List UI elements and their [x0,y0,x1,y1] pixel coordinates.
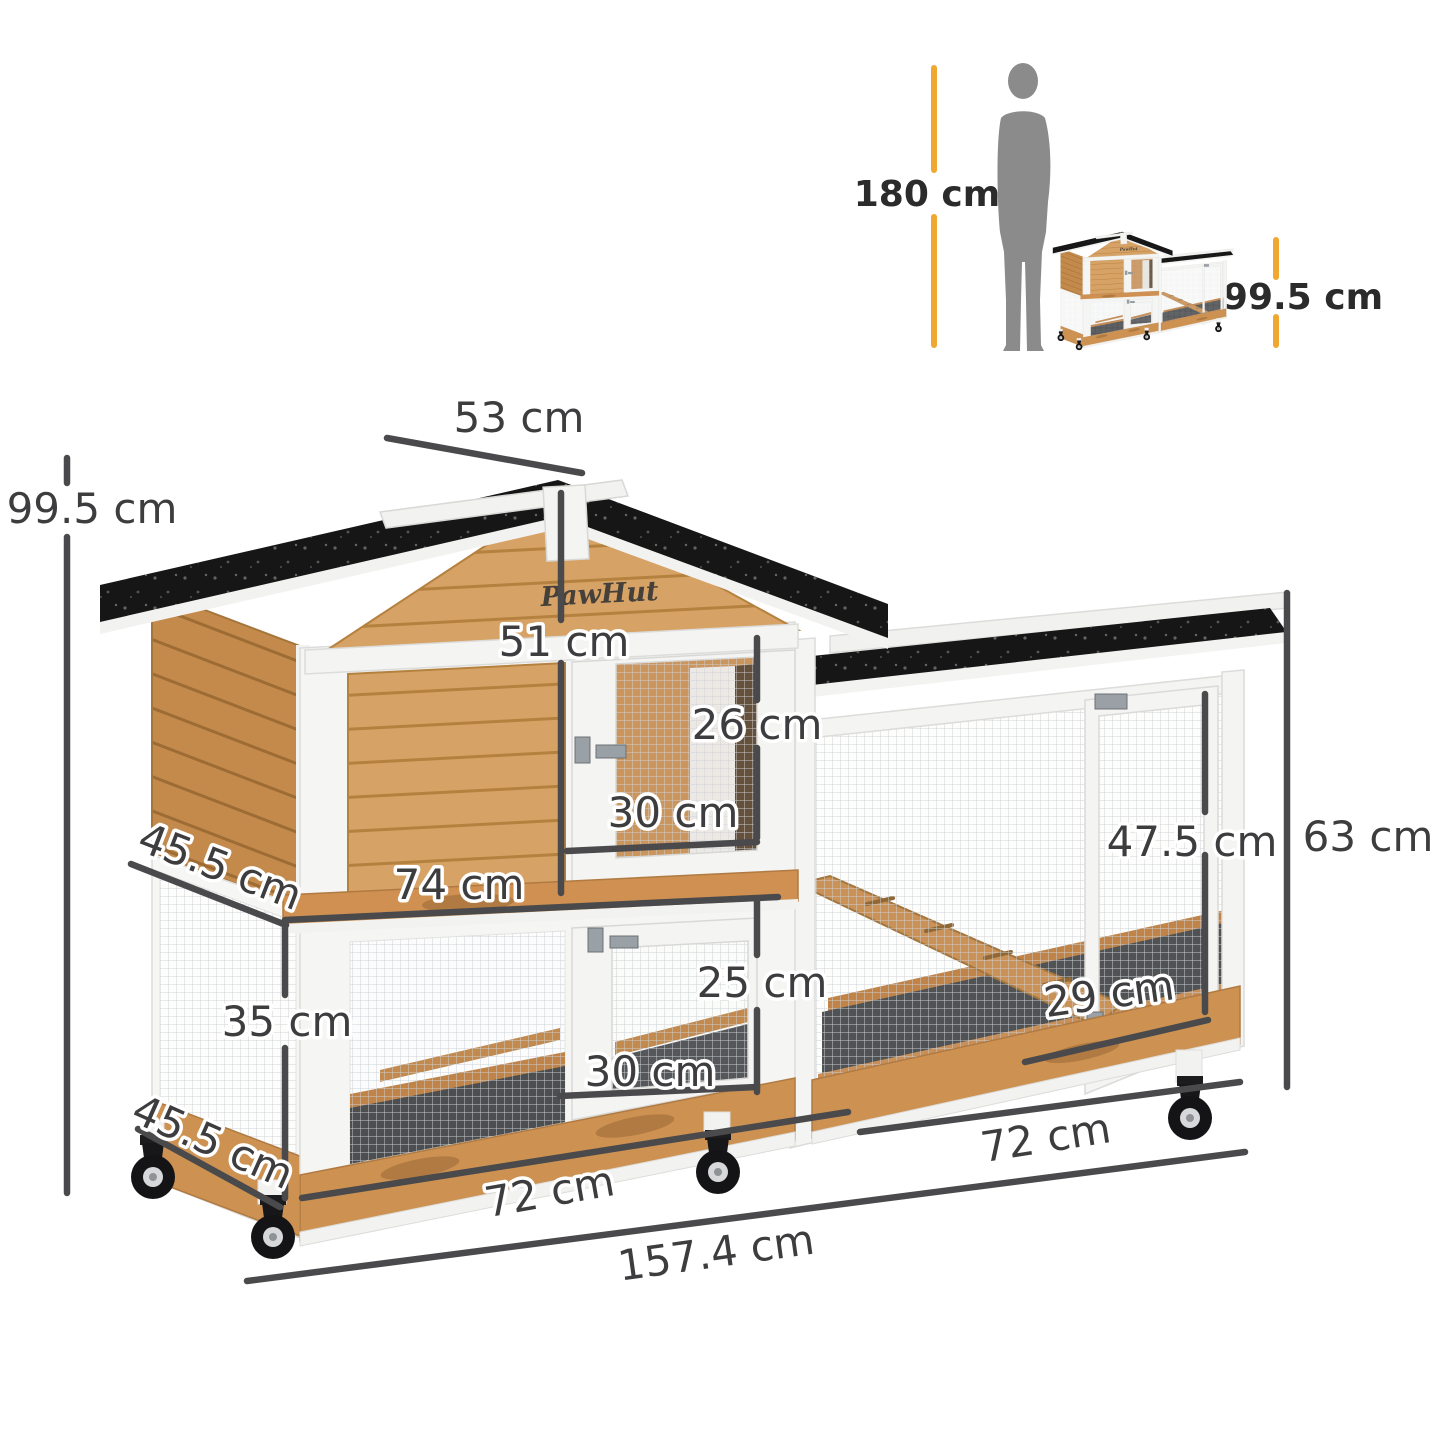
ridge-finial [543,485,589,561]
product-height-label: 99.5 cm [1223,277,1383,318]
silhouette-head [1008,63,1038,99]
label-lower-level-height: 35 cm [222,997,353,1046]
product-dimension-diagram: PawHut [0,0,1445,1445]
upper-door-hinge [575,737,590,763]
upper-door [572,650,795,904]
label-lower-door-width: 30 cm [585,1047,716,1096]
label-upper-door-height: 26 cm [692,700,823,749]
label-upper-level-width: 74 cm [394,860,525,909]
lower-door-hinge [588,928,603,952]
label-roof-width: 53 cm [454,393,585,442]
label-run-height: 63 cm [1303,812,1434,861]
label-lower-door-height: 25 cm [697,958,828,1007]
brand-logo: PawHut [539,576,660,613]
run-door-latch [1095,694,1127,709]
label-overall-height: 99.5 cm [7,484,178,533]
label-upper-hutch-height: 51 cm [499,617,630,666]
person-height-label: 180 cm [854,174,1001,215]
upper-door-latch [596,745,626,758]
diagram-canvas: PawHut [0,0,1445,1445]
lower-door-latch [610,936,638,948]
label-run-door-height: 47.5 cm [1107,817,1278,866]
label-upper-door-width: 30 cm [608,788,739,837]
